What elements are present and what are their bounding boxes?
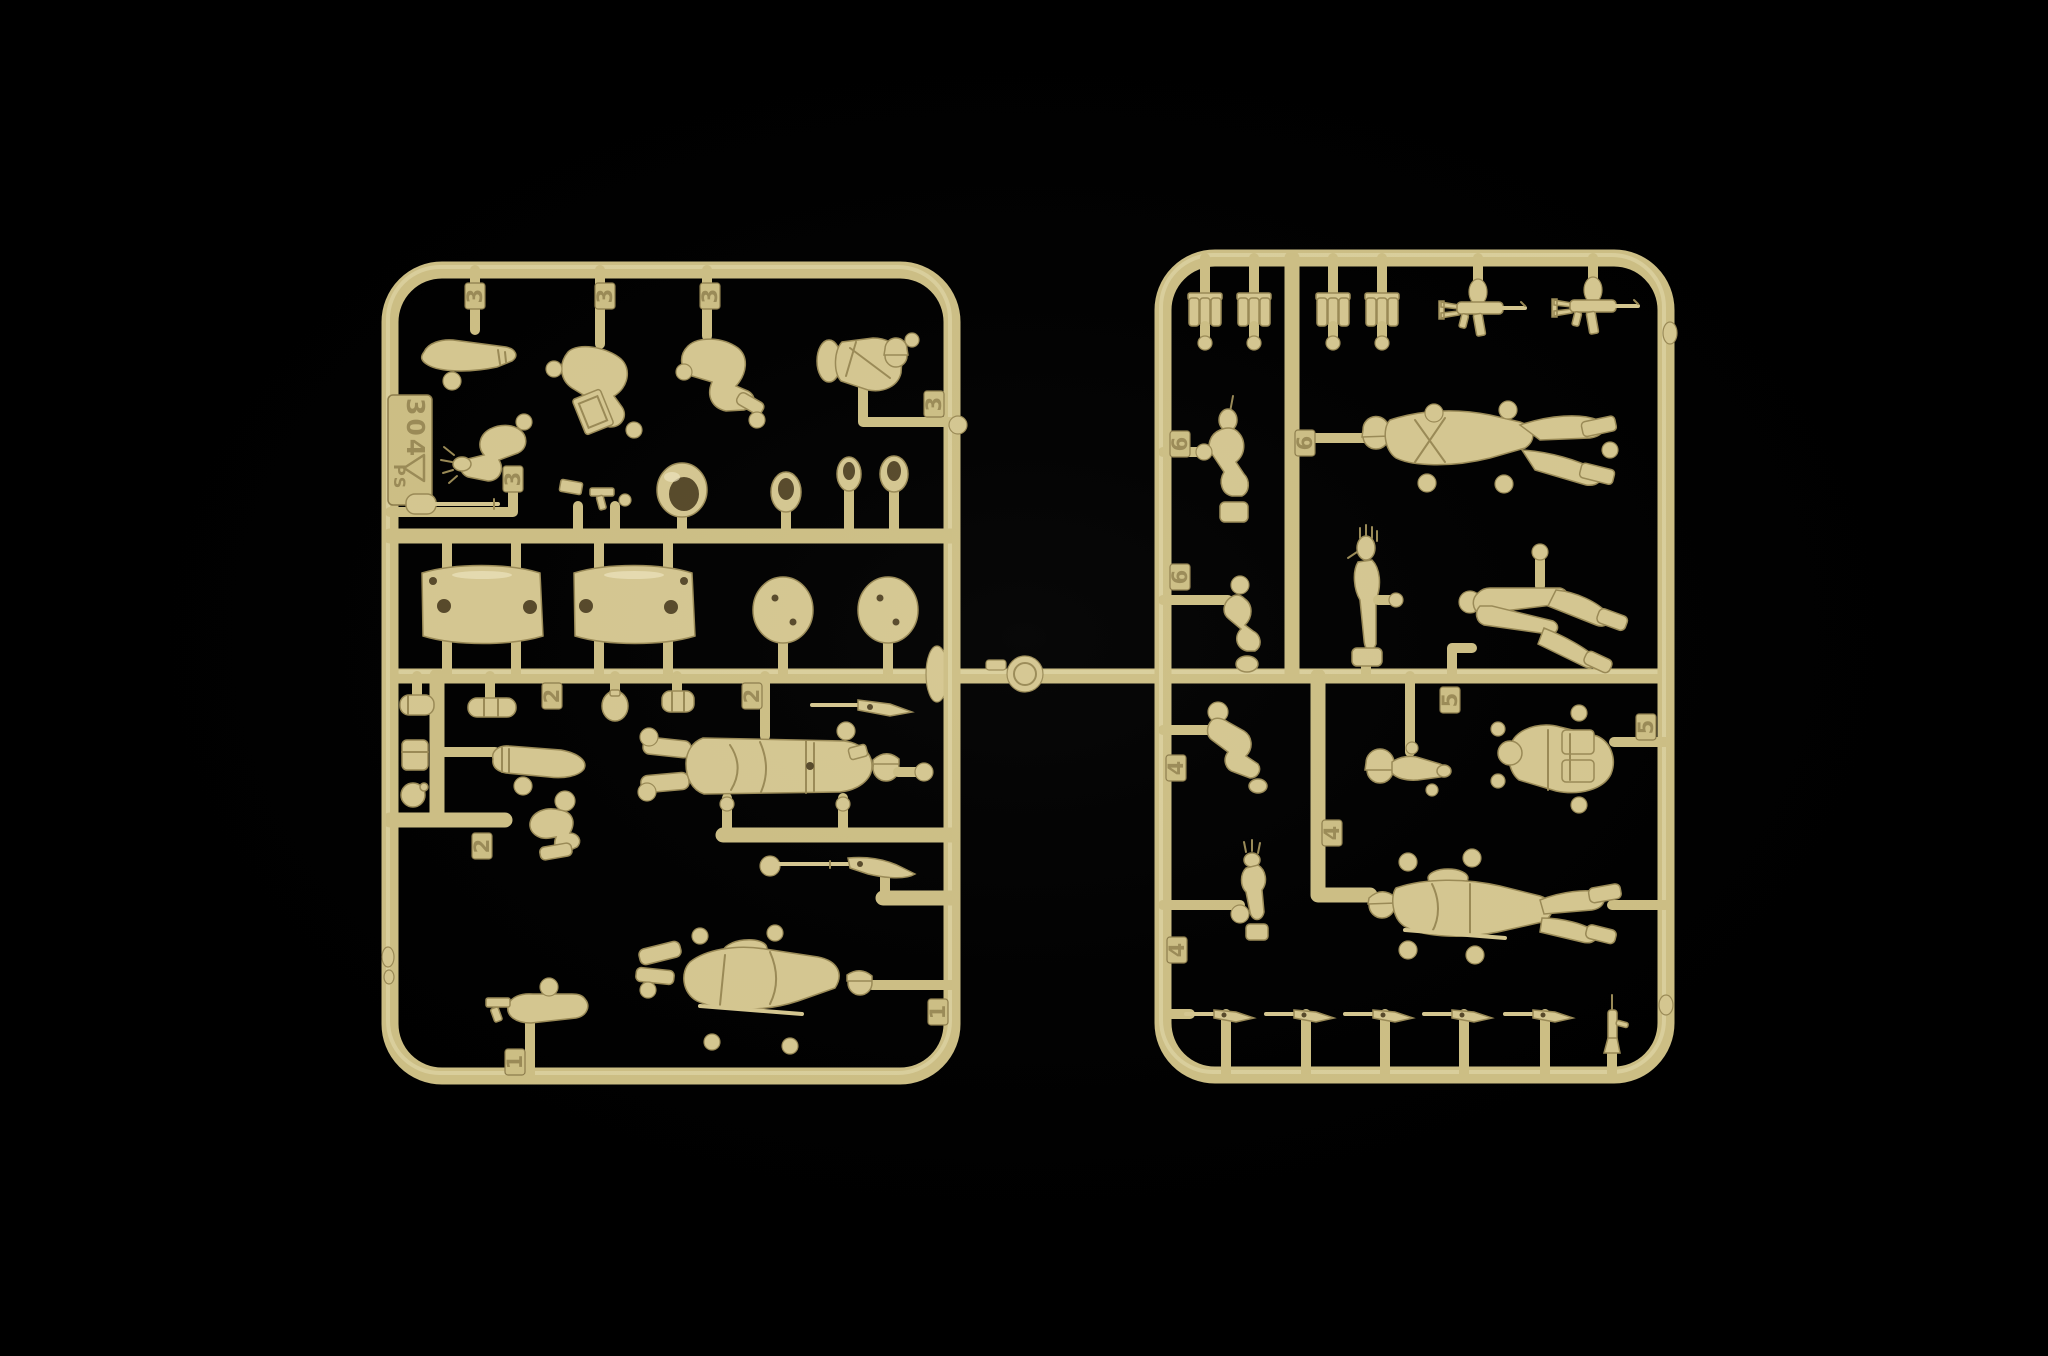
photo-canvas: 304 PS [0, 0, 2048, 1356]
photo-vignette [0, 0, 2048, 1356]
sprue-photo: 304 PS [0, 0, 2048, 1356]
